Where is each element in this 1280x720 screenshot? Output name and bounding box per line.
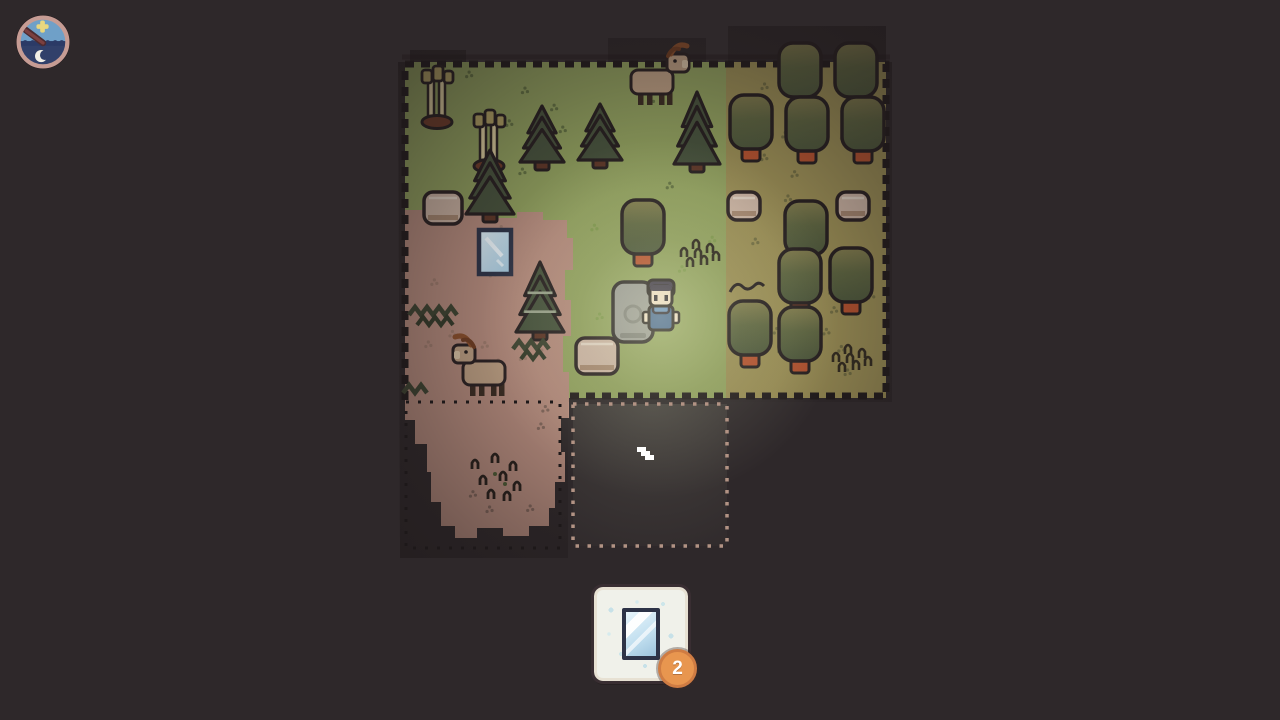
- game-screen: 2: [0, 0, 1280, 720]
- expansion-plot-dotted-border[interactable]: [573, 404, 727, 546]
- glass-pane-item-icon[interactable]: [622, 608, 660, 660]
- expansion-plot[interactable]: [573, 404, 727, 546]
- tree-stump[interactable]: [728, 192, 760, 220]
- round-tree[interactable]: [785, 201, 827, 255]
- tree-stump[interactable]: [424, 192, 462, 224]
- item-count-badge: 2: [658, 649, 697, 688]
- glass-shine: [626, 612, 656, 656]
- tree-stump[interactable]: [576, 338, 618, 374]
- tree-stump[interactable]: [837, 192, 869, 220]
- day-night-clock: [13, 12, 73, 72]
- glass-pane-placed[interactable]: [479, 230, 511, 274]
- hotbar-slot[interactable]: 2: [594, 587, 688, 681]
